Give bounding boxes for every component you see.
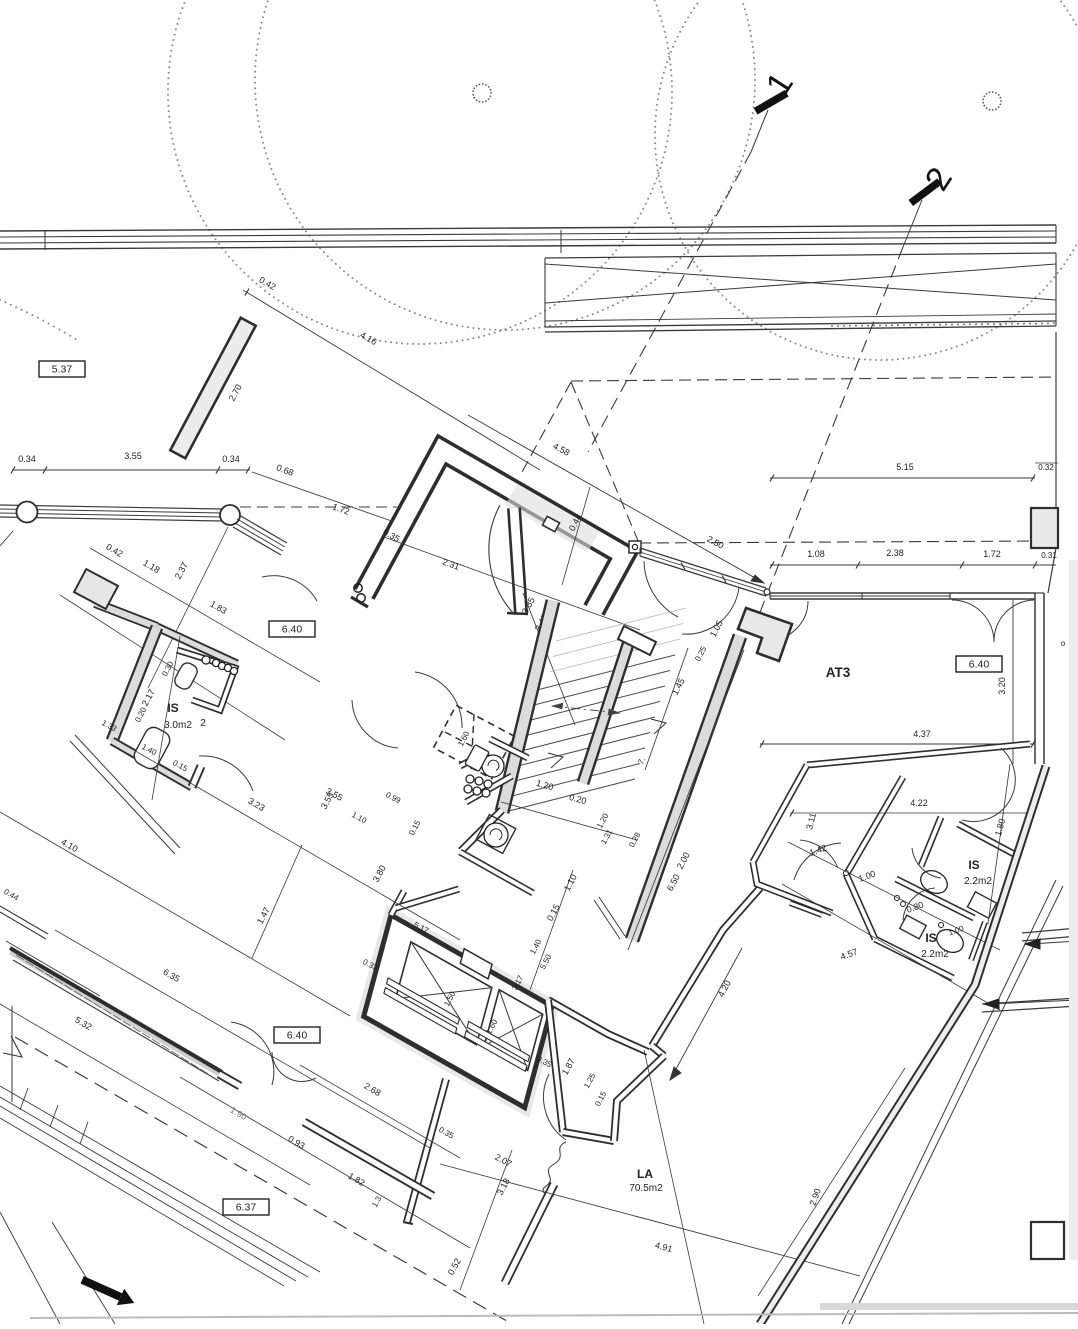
svg-text:4.22: 4.22 [910,798,928,808]
svg-text:2.2m2: 2.2m2 [964,876,992,887]
svg-text:6.40: 6.40 [969,659,990,671]
svg-text:IS: IS [167,701,178,715]
svg-text:o: o [1061,639,1066,648]
svg-text:0.31: 0.31 [1041,551,1057,560]
svg-text:3.0m2: 3.0m2 [164,720,192,731]
svg-text:5.15: 5.15 [896,462,914,472]
svg-text:IS: IS [968,858,979,872]
svg-text:70.5m2: 70.5m2 [629,1183,663,1194]
svg-text:5.37: 5.37 [52,364,73,376]
svg-text:IS: IS [925,931,936,945]
svg-text:4.37: 4.37 [913,729,931,739]
svg-text:LA: LA [637,1167,653,1181]
svg-text:1.72: 1.72 [983,549,1001,559]
svg-text:2.38: 2.38 [886,548,904,558]
svg-text:0.34: 0.34 [18,454,36,464]
svg-text:2.2m2: 2.2m2 [921,949,949,960]
svg-text:6.40: 6.40 [282,624,303,636]
svg-text:0.32: 0.32 [1038,463,1054,472]
svg-text:0.34: 0.34 [222,454,240,464]
svg-text:3.55: 3.55 [124,451,142,461]
svg-text:6.37: 6.37 [236,1202,257,1214]
svg-text:3.20: 3.20 [997,677,1007,695]
svg-text:6.40: 6.40 [287,1030,308,1042]
svg-text:1.08: 1.08 [807,549,825,559]
svg-text:2: 2 [200,718,206,729]
svg-text:AT3: AT3 [826,665,851,680]
